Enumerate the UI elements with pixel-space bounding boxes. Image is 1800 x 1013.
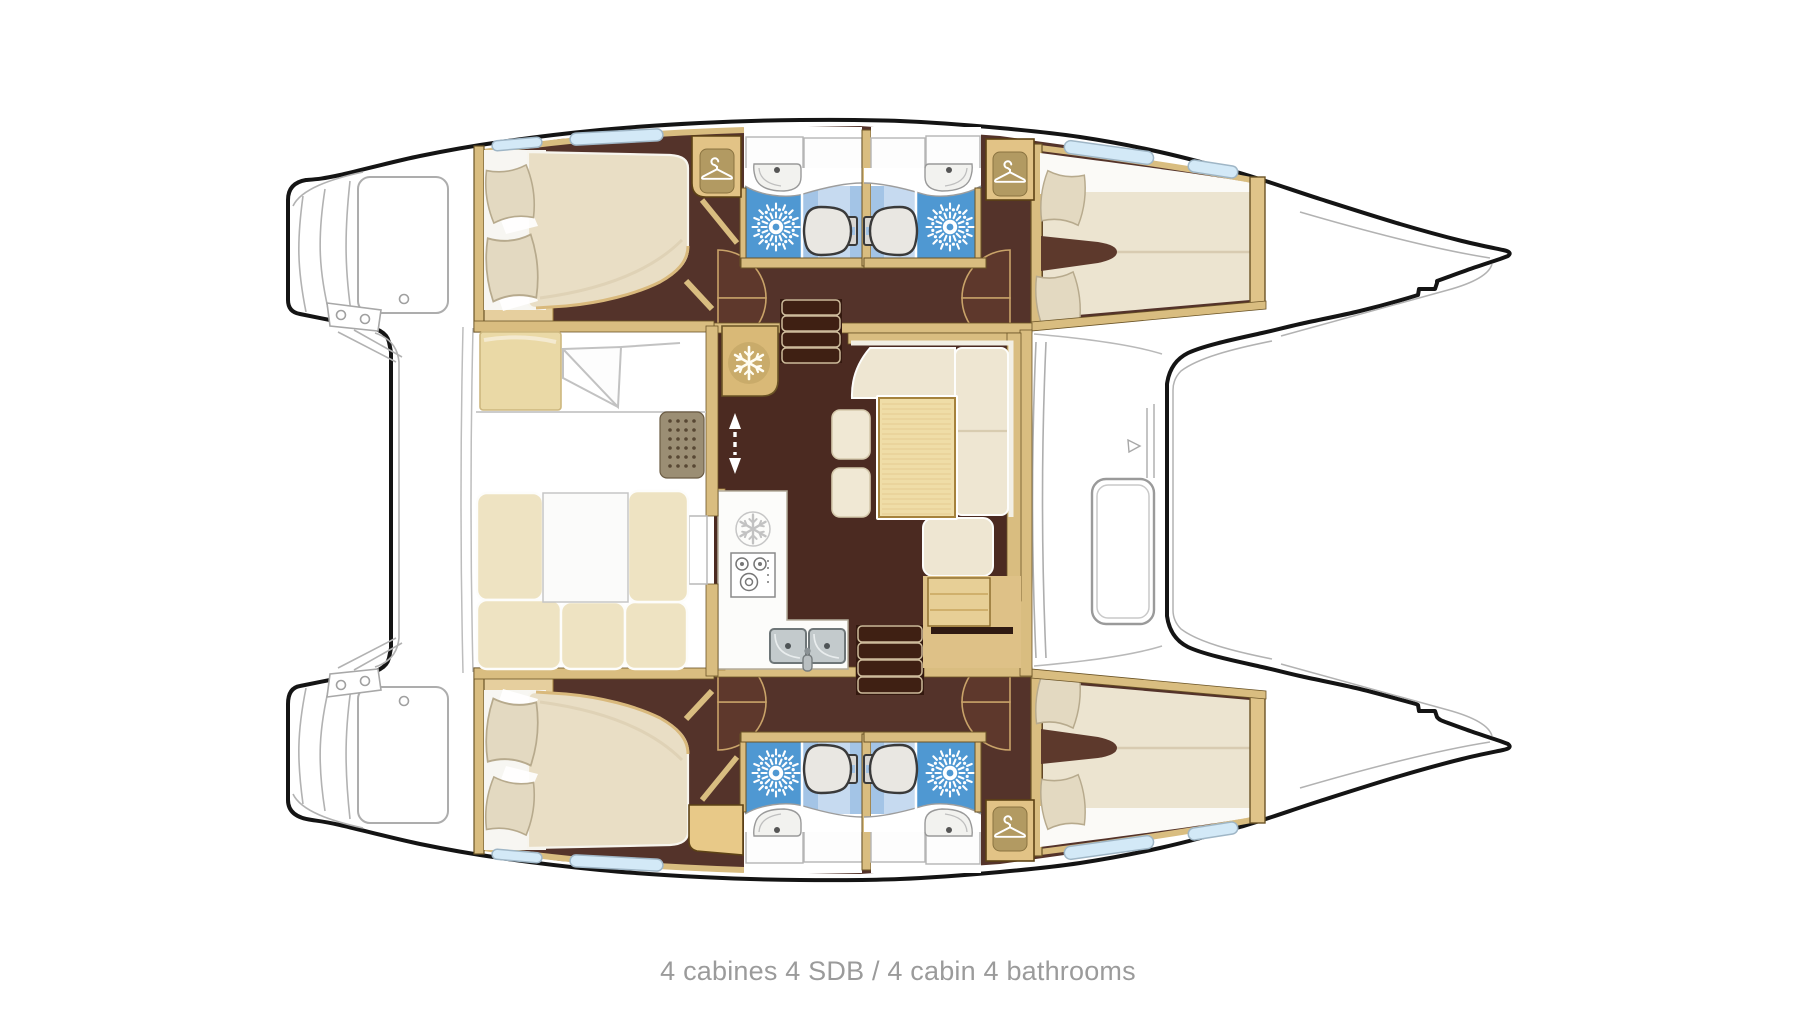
svg-text:4 cabines 4 SDB / 4 cabin 4 ba: 4 cabines 4 SDB / 4 cabin 4 bathrooms	[660, 956, 1136, 986]
